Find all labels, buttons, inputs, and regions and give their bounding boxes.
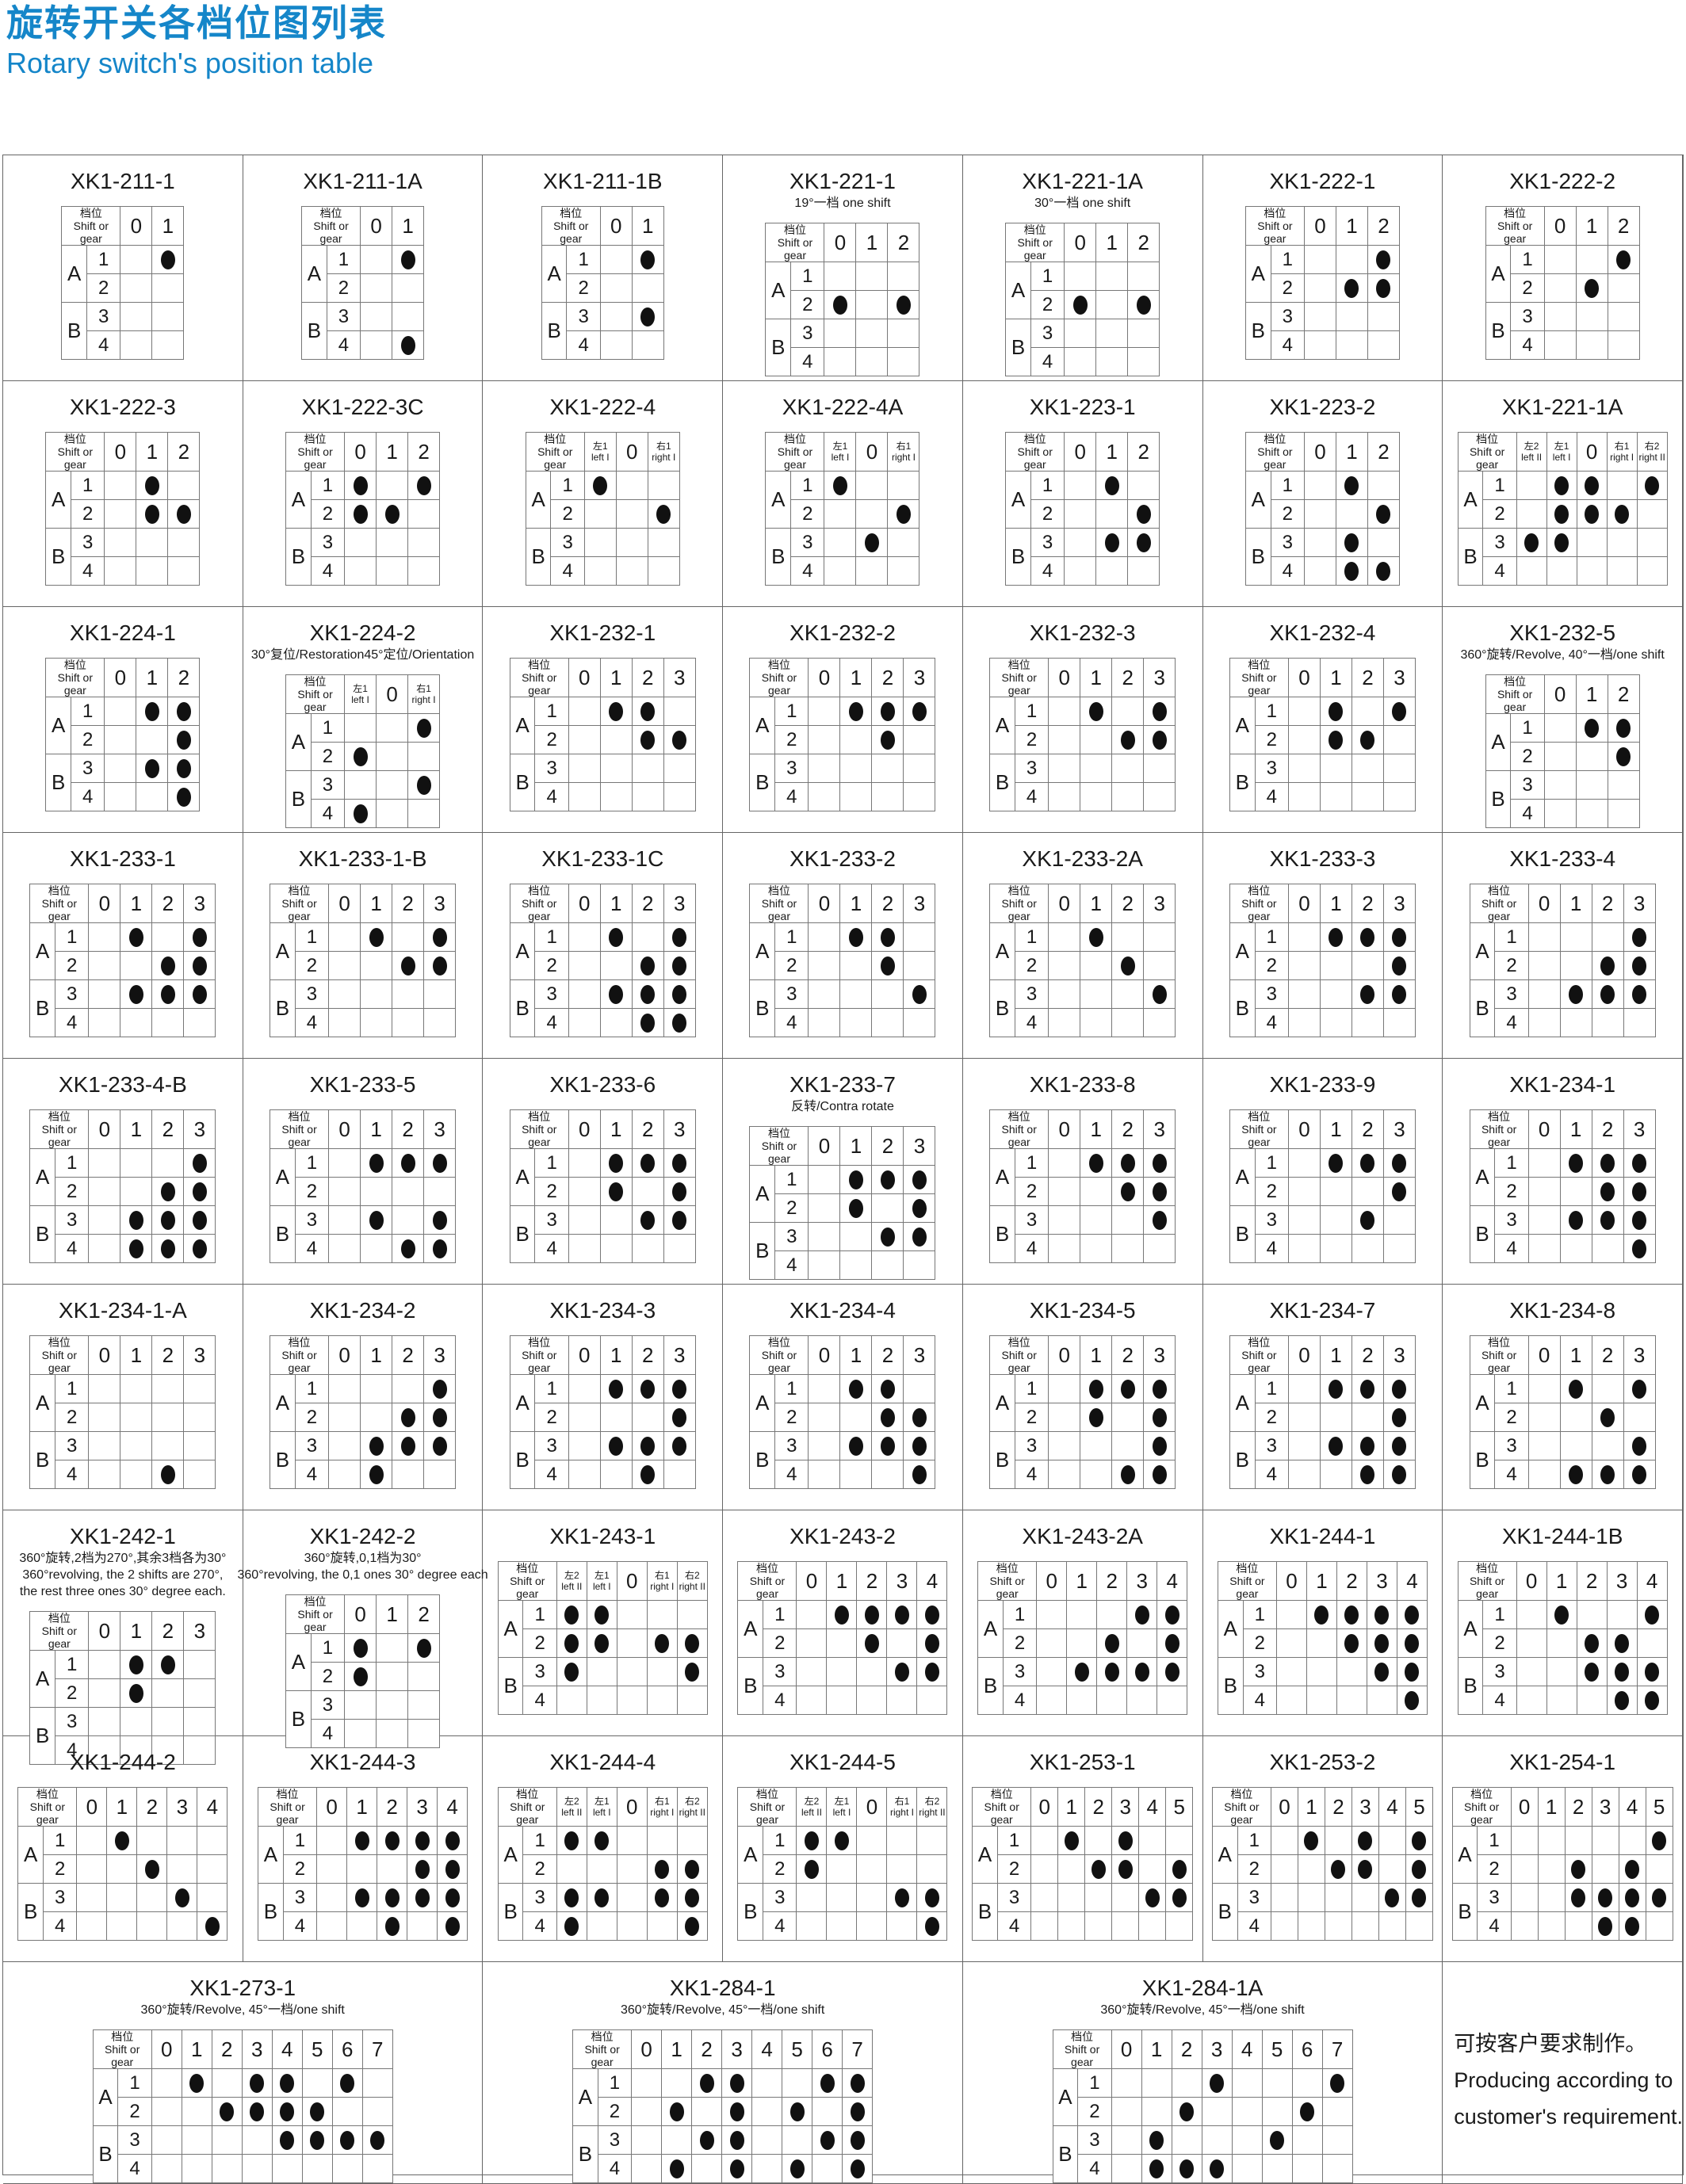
column-header: 1	[152, 207, 184, 246]
position-cell	[1351, 1432, 1383, 1460]
row-number: 1	[1243, 1601, 1276, 1629]
position-cell	[647, 1855, 677, 1884]
position-dot	[1153, 985, 1167, 1004]
position-dot	[1118, 1831, 1133, 1850]
row-number: 4	[1255, 1235, 1288, 1263]
position-cell	[568, 980, 600, 1009]
position-cell	[632, 1403, 663, 1432]
position-cell	[722, 2098, 752, 2126]
row-group-label: A	[270, 1149, 296, 1206]
position-cell	[1336, 500, 1367, 529]
position-cell	[824, 291, 856, 319]
position-cell	[1405, 1884, 1432, 1912]
position-dot	[433, 956, 447, 976]
column-header: 0	[568, 884, 600, 923]
row-group-label: A	[258, 1827, 284, 1884]
position-cell	[168, 726, 200, 754]
position-cell	[89, 1460, 120, 1489]
position-cell	[345, 500, 377, 529]
position-cell	[1546, 1601, 1577, 1629]
switch-model: XK1-224-2	[310, 620, 416, 647]
position-cell	[377, 1912, 407, 1941]
row-number: 1	[1271, 472, 1304, 500]
position-cell	[1166, 1827, 1193, 1855]
position-dot	[672, 928, 686, 947]
row-group-label: A	[30, 1149, 55, 1206]
position-cell	[408, 1634, 440, 1663]
row-group-label: B	[1229, 980, 1255, 1037]
switch-subtitle: 360°revolving, the 2 shifts are 270°,	[22, 1567, 223, 1583]
position-cell	[120, 274, 152, 303]
row-number: 2	[1003, 1629, 1036, 1658]
position-cell	[632, 303, 663, 331]
row-number: 3	[1015, 980, 1048, 1009]
position-dot	[401, 1154, 415, 1173]
position-table: 档位 Shift or gear0123A12B34	[510, 1335, 696, 1489]
position-cell	[1516, 500, 1546, 529]
position-dot	[340, 2074, 354, 2093]
position-dot	[129, 1211, 143, 1230]
position-cell	[361, 331, 392, 360]
gear-label: 档位 Shift or gear	[46, 659, 105, 697]
row-group-label: B	[1485, 771, 1511, 828]
position-cell	[1592, 1460, 1623, 1489]
position-cell	[408, 800, 440, 828]
position-cell	[917, 1855, 947, 1884]
row-number: 1	[311, 714, 344, 743]
column-header: 2	[1608, 675, 1639, 714]
row-number: 3	[295, 1206, 328, 1235]
position-dot	[1075, 1663, 1089, 1682]
position-cell	[136, 783, 168, 811]
row-number: 4	[1511, 800, 1544, 828]
gear-label: 档位 Shift or gear	[30, 1110, 89, 1149]
position-cell	[1637, 1629, 1667, 1658]
position-cell	[1080, 1460, 1112, 1489]
position-dot	[640, 702, 655, 721]
row-number: 4	[1495, 1009, 1528, 1037]
row-number: 1	[295, 1149, 328, 1178]
gear-label: 档位 Shift or gear	[573, 2030, 632, 2069]
switch-model: XK1-232-4	[1269, 620, 1375, 647]
position-dot	[1615, 1634, 1629, 1653]
switch-model: XK1-232-3	[1030, 620, 1136, 647]
row-number: 1	[1495, 1375, 1528, 1403]
column-header: 1	[1560, 884, 1592, 923]
row-number: 1	[791, 262, 824, 291]
position-dot	[250, 2074, 264, 2093]
position-cell	[888, 500, 919, 529]
position-dot	[1135, 1663, 1149, 1682]
position-cell	[1144, 980, 1176, 1009]
position-cell	[1576, 303, 1608, 331]
position-cell	[1112, 1855, 1139, 1884]
position-cell	[677, 1884, 707, 1912]
gear-label: 档位 Shift or gear	[498, 1788, 556, 1827]
switch-subtitle: 反转/Contra rotate	[791, 1098, 894, 1115]
row-group-label: A	[286, 472, 312, 529]
position-cell	[345, 1691, 377, 1720]
row-number: 1	[535, 697, 568, 726]
position-cell	[632, 1235, 663, 1263]
position-dot	[1569, 1154, 1583, 1173]
position-cell	[377, 1884, 407, 1912]
position-cell	[1288, 1432, 1320, 1460]
gear-label: 档位 Shift or gear	[46, 433, 105, 472]
position-dot	[1392, 1154, 1406, 1173]
column-header: 3	[722, 2030, 752, 2069]
row-number: 3	[1255, 754, 1288, 783]
position-cell	[568, 1206, 600, 1235]
switch-cell: XK1-244-3档位 Shift or gear01234A12B34	[243, 1736, 484, 1962]
position-cell	[647, 1912, 677, 1941]
gear-label: 档位 Shift or gear	[1485, 207, 1544, 246]
position-dot	[1405, 1606, 1419, 1625]
position-cell	[152, 331, 184, 360]
row-number: 4	[535, 783, 568, 811]
column-header: 0	[329, 1336, 361, 1375]
position-cell	[1080, 1206, 1112, 1235]
position-cell	[1292, 2098, 1322, 2126]
position-cell	[648, 557, 679, 586]
position-dot	[912, 1199, 927, 1218]
position-cell	[184, 980, 216, 1009]
position-cell	[840, 1375, 872, 1403]
position-dot	[1153, 1408, 1167, 1427]
position-dot	[849, 928, 863, 947]
position-cell	[1111, 2155, 1141, 2183]
position-cell	[857, 1884, 887, 1912]
position-cell	[345, 472, 377, 500]
position-cell	[1608, 800, 1639, 828]
column-header: 2	[408, 1595, 440, 1634]
position-cell	[827, 1855, 857, 1884]
position-cell	[663, 952, 695, 980]
position-cell	[904, 1460, 935, 1489]
position-cell	[107, 1855, 137, 1884]
position-cell	[887, 1658, 917, 1686]
position-dot	[445, 1860, 460, 1879]
position-cell	[1144, 783, 1176, 811]
row-group-label: A	[541, 246, 567, 303]
column-header: 0	[1511, 1788, 1538, 1827]
position-dot	[369, 928, 384, 947]
position-cell	[1271, 1827, 1298, 1855]
position-cell	[600, 1432, 632, 1460]
position-cell	[587, 1601, 617, 1629]
position-dot	[865, 1634, 879, 1653]
row-number: 1	[1015, 1149, 1048, 1178]
column-header: 1	[120, 1110, 152, 1149]
position-table: 档位 Shift or gear01234A12B34	[1218, 1561, 1428, 1715]
position-cell	[1157, 1629, 1187, 1658]
row-number: 4	[1243, 1686, 1276, 1715]
position-dot	[445, 1831, 460, 1850]
column-header: 1	[107, 1788, 137, 1827]
position-cell	[408, 529, 440, 557]
position-dot	[1571, 1888, 1585, 1907]
column-header: 3	[1351, 1788, 1378, 1827]
column-header: 右2 right II	[1637, 433, 1667, 472]
position-dot	[1344, 279, 1359, 298]
position-cell	[345, 529, 377, 557]
column-header: 右1 right I	[647, 1788, 677, 1827]
position-cell	[1577, 472, 1607, 500]
row-number: 3	[551, 529, 584, 557]
switch-cell: XK1-222-1档位 Shift or gear012A12B34	[1203, 155, 1443, 381]
row-number: 2	[535, 1178, 568, 1206]
column-header: 0	[1516, 1562, 1546, 1601]
position-table: 档位 Shift or gear左2 left II左1 left I0右1 r…	[498, 1787, 708, 1941]
position-cell	[568, 754, 600, 783]
position-cell	[1565, 1827, 1592, 1855]
position-dot	[1598, 1888, 1612, 1907]
position-dot	[640, 1437, 655, 1456]
position-cell	[1096, 348, 1128, 376]
gear-label: 档位 Shift or gear	[286, 1595, 345, 1634]
row-group-label: A	[973, 1827, 998, 1884]
row-number: 2	[1015, 1403, 1048, 1432]
switch-cell: XK1-244-1档位 Shift or gear01234A12B34	[1203, 1510, 1443, 1736]
position-cell	[809, 783, 840, 811]
position-cell	[332, 2155, 362, 2183]
position-cell	[136, 500, 168, 529]
position-cell	[568, 1009, 600, 1037]
switch-model: XK1-253-1	[1030, 1749, 1136, 1776]
position-cell	[809, 980, 840, 1009]
position-cell	[600, 697, 632, 726]
position-cell	[1367, 303, 1399, 331]
position-dot	[685, 1917, 699, 1936]
position-dot	[1360, 731, 1374, 750]
position-cell	[568, 783, 600, 811]
position-cell	[120, 1708, 152, 1736]
position-table: 档位 Shift or gear01234567A12B34	[93, 2029, 393, 2183]
position-table: 档位 Shift or gear0123A12B34	[510, 1109, 696, 1263]
position-dot	[640, 1380, 655, 1399]
row-number: 3	[55, 980, 89, 1009]
position-dot	[640, 1014, 655, 1033]
column-header: 0	[617, 1562, 647, 1601]
position-dot	[833, 476, 847, 495]
switch-model: XK1-233-7	[789, 1071, 896, 1098]
position-dot	[310, 2131, 324, 2150]
position-cell	[1544, 246, 1576, 274]
column-header: 1	[1080, 1336, 1112, 1375]
row-group-label: A	[302, 246, 327, 303]
position-cell	[1080, 1375, 1112, 1403]
position-cell	[1031, 1855, 1058, 1884]
gear-label: 档位 Shift or gear	[30, 884, 89, 923]
position-dot	[895, 1663, 909, 1682]
position-cell	[587, 1827, 617, 1855]
position-cell	[1080, 1432, 1112, 1460]
position-cell	[362, 2155, 392, 2183]
position-cell	[1111, 2069, 1141, 2098]
position-dot	[1585, 1663, 1599, 1682]
position-cell	[1637, 557, 1667, 586]
position-dot	[655, 1634, 669, 1653]
row-number: 1	[1255, 1375, 1288, 1403]
column-header: 3	[1144, 659, 1176, 697]
position-dot	[354, 1667, 368, 1686]
row-number: 3	[791, 319, 824, 348]
position-dot	[1600, 1211, 1615, 1230]
position-cell	[812, 2126, 843, 2155]
position-dot	[369, 1154, 384, 1173]
position-cell	[1080, 1178, 1112, 1206]
position-cell	[797, 1686, 827, 1715]
position-table: 档位 Shift or gear左2 left II左1 left I0右1 r…	[1458, 432, 1668, 586]
position-cell	[120, 1178, 152, 1206]
column-header: 左2 left II	[797, 1788, 827, 1827]
position-cell	[872, 783, 904, 811]
position-cell	[424, 952, 456, 980]
position-cell	[361, 1149, 392, 1178]
row-number: 4	[1483, 557, 1516, 586]
position-cell	[1383, 980, 1415, 1009]
position-cell	[827, 1884, 857, 1912]
position-cell	[600, 274, 632, 303]
row-number: 2	[775, 726, 809, 754]
row-number: 2	[1243, 1629, 1276, 1658]
switch-cell: XK1-222-2档位 Shift or gear012A12B34	[1443, 155, 1683, 381]
position-cell	[872, 923, 904, 952]
row-group-label: B	[526, 529, 551, 586]
switch-model: XK1-233-9	[1269, 1071, 1375, 1098]
position-cell	[77, 1884, 107, 1912]
position-cell	[1144, 754, 1176, 783]
column-header: 3	[1623, 1336, 1655, 1375]
position-cell	[184, 1009, 216, 1037]
column-header: 1	[1546, 1562, 1577, 1601]
position-cell	[647, 1629, 677, 1658]
position-cell	[812, 2155, 843, 2183]
row-number: 3	[71, 754, 105, 783]
row-number: 2	[1078, 2098, 1111, 2126]
row-number: 3	[1015, 1206, 1048, 1235]
position-cell	[1383, 1009, 1415, 1037]
position-cell	[1067, 1601, 1097, 1629]
row-number: 1	[1495, 923, 1528, 952]
position-cell	[392, 246, 424, 274]
column-header: 1	[361, 884, 392, 923]
position-cell	[1336, 1601, 1367, 1629]
position-table: 档位 Shift or gear01A12B34	[541, 206, 664, 360]
position-dot	[280, 2102, 294, 2121]
column-header: 左1 left I	[824, 433, 856, 472]
column-header: 3	[424, 1110, 456, 1149]
position-cell	[1080, 697, 1112, 726]
position-cell	[1304, 529, 1336, 557]
position-cell	[77, 1912, 107, 1941]
gear-label: 档位 Shift or gear	[510, 1336, 568, 1375]
column-header: 0	[1271, 1788, 1298, 1827]
position-cell	[377, 557, 408, 586]
position-cell	[632, 1375, 663, 1403]
switch-subtitle: 19°一档 one shift	[794, 195, 890, 212]
row-number: 1	[763, 1827, 797, 1855]
position-cell	[1623, 1206, 1655, 1235]
row-number: 4	[1511, 331, 1544, 360]
row-group-label: A	[510, 1375, 535, 1432]
position-cell	[857, 1658, 887, 1686]
position-dot	[1344, 562, 1359, 581]
position-dot	[177, 505, 191, 524]
position-cell	[663, 1460, 695, 1489]
position-cell	[89, 952, 120, 980]
position-dot	[1121, 1182, 1135, 1201]
position-cell	[1576, 714, 1608, 743]
position-cell	[1112, 1432, 1144, 1460]
position-table: 档位 Shift or gear0123A12B34	[989, 658, 1176, 811]
note-line: Producing according to	[1454, 2062, 1673, 2098]
position-cell	[857, 1912, 887, 1941]
position-dot	[1392, 702, 1406, 721]
row-group-label: A	[510, 1149, 535, 1206]
position-dot	[790, 2159, 805, 2178]
position-cell	[345, 743, 377, 771]
row-number: 4	[1030, 557, 1064, 586]
row-number: 3	[55, 1206, 89, 1235]
position-cell	[632, 246, 663, 274]
position-cell	[1139, 1827, 1166, 1855]
position-dot	[189, 2074, 204, 2093]
position-cell	[1288, 754, 1320, 783]
gear-label: 档位 Shift or gear	[750, 884, 809, 923]
position-cell	[692, 2069, 722, 2098]
position-cell	[89, 1403, 120, 1432]
switch-model: XK1-221-1	[789, 168, 896, 195]
position-cell	[361, 1235, 392, 1263]
switch-cell: XK1-254-1档位 Shift or gear012345A12B34	[1443, 1736, 1683, 1962]
column-header: 2	[692, 2030, 722, 2069]
position-cell	[347, 1884, 377, 1912]
column-header: 2	[408, 433, 440, 472]
position-dot	[1360, 928, 1374, 947]
position-cell	[1351, 980, 1383, 1009]
position-cell	[1576, 800, 1608, 828]
position-cell	[617, 1827, 647, 1855]
position-cell	[361, 1403, 392, 1432]
position-cell	[647, 1884, 677, 1912]
position-cell	[887, 1884, 917, 1912]
switch-cell: XK1-233-4档位 Shift or gear0123A12B34	[1443, 833, 1683, 1059]
row-group-label: A	[1006, 262, 1031, 319]
position-cell	[152, 952, 184, 980]
position-dot	[193, 1211, 207, 1230]
position-cell	[120, 952, 152, 980]
row-number: 2	[1511, 743, 1544, 771]
row-number: 1	[775, 697, 809, 726]
position-cell	[120, 1651, 152, 1679]
row-group-label: B	[1458, 529, 1483, 586]
position-cell	[345, 800, 377, 828]
position-cell	[840, 697, 872, 726]
position-dot	[145, 702, 159, 721]
position-cell	[182, 2155, 212, 2183]
row-number: 2	[523, 1629, 556, 1658]
position-cell	[438, 1912, 468, 1941]
row-number: 4	[295, 1235, 328, 1263]
position-cell	[392, 303, 424, 331]
position-cell	[568, 1460, 600, 1489]
position-cell	[1320, 1178, 1351, 1206]
position-cell	[1528, 1403, 1560, 1432]
row-number: 4	[327, 331, 360, 360]
column-header: 左2 left II	[556, 1562, 587, 1601]
switch-cell: XK1-233-5档位 Shift or gear0123A12B34	[243, 1059, 484, 1285]
